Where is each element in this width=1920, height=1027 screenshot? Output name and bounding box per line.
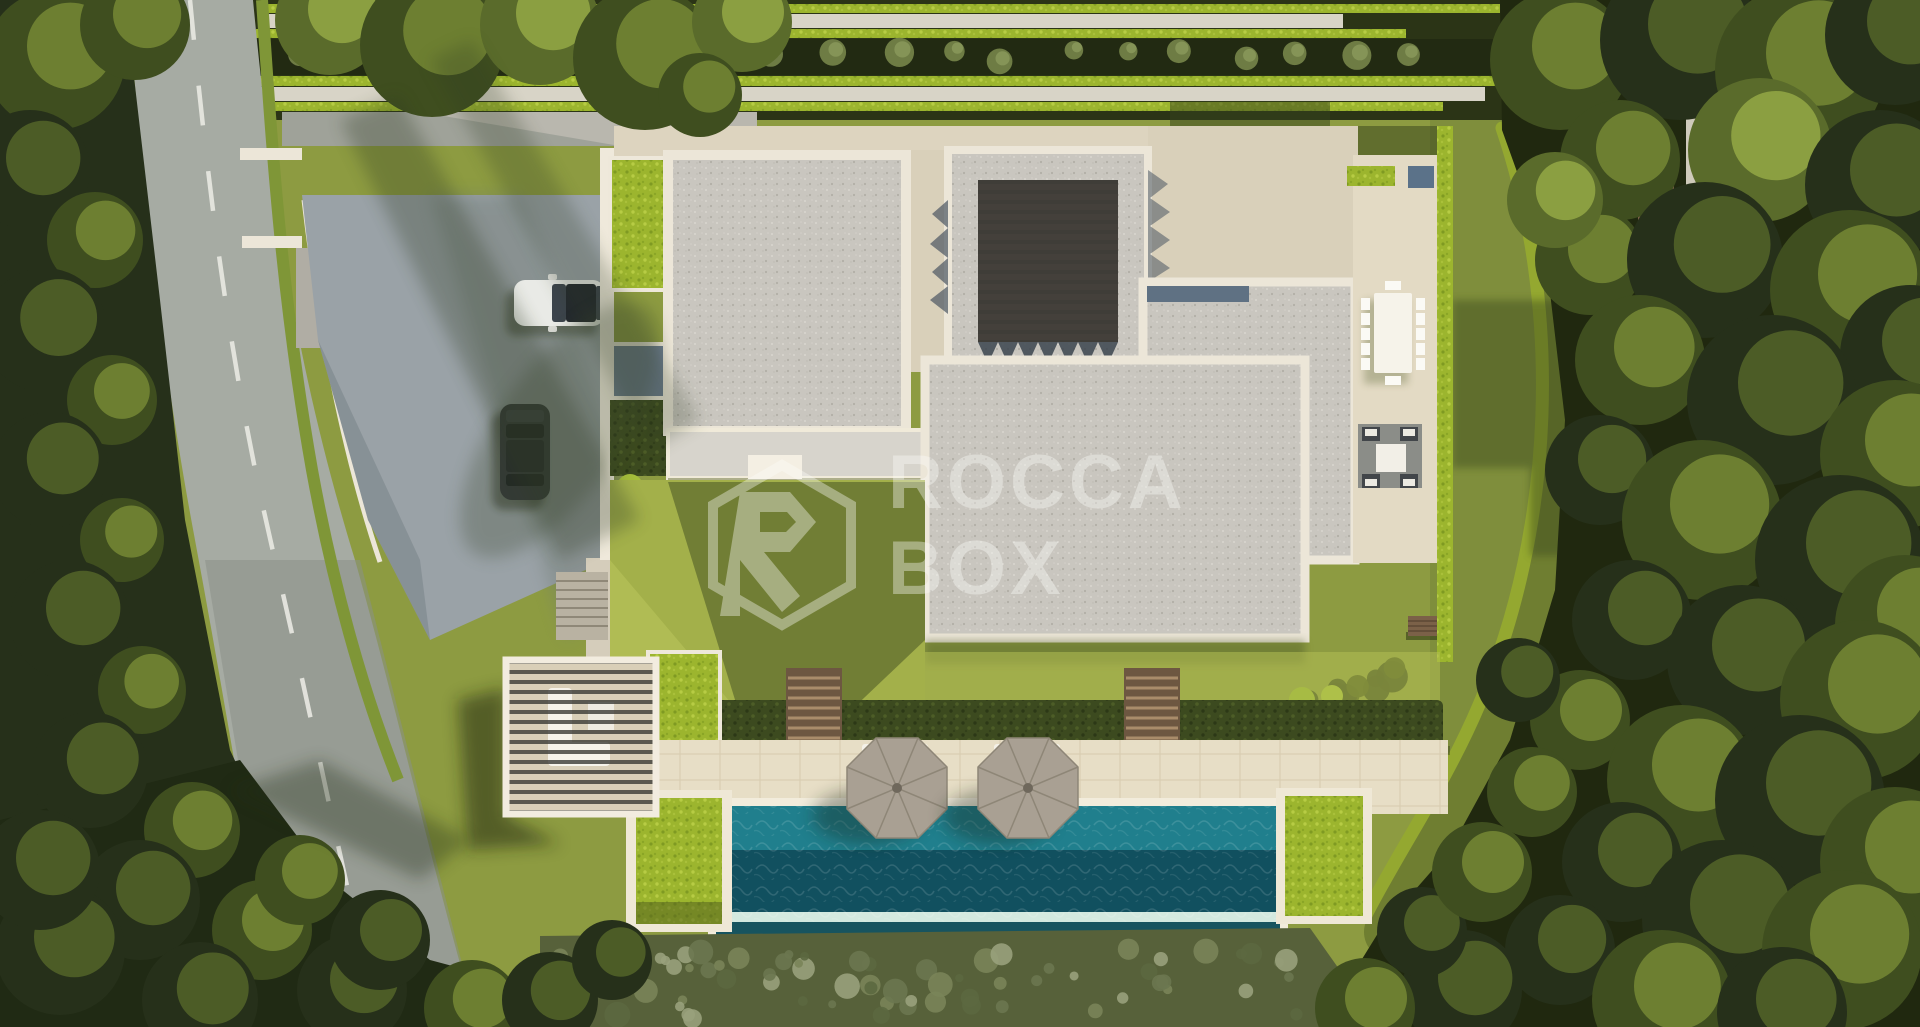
tree-canopy-highlight <box>173 791 233 851</box>
tree-canopy-highlight <box>1670 454 1769 553</box>
scrub-shrub <box>994 977 1007 990</box>
coffee-table <box>1376 444 1406 472</box>
chair-cushion <box>1403 429 1415 436</box>
tree-canopy-highlight <box>105 506 157 558</box>
east-court <box>1148 126 1358 284</box>
olive-tree-highlight <box>1352 44 1368 60</box>
gate-wall <box>240 148 302 160</box>
olive-tree-highlight <box>952 43 963 54</box>
stair-treads <box>788 678 840 738</box>
tree-canopy-highlight <box>1536 161 1596 221</box>
tree-canopy-highlight <box>360 899 422 961</box>
scrub-shrub <box>763 968 776 981</box>
chair-cushion <box>1365 429 1377 436</box>
scrub-shrub <box>784 950 793 959</box>
hedge-box-pool-right <box>1276 788 1372 924</box>
scrub-shrub <box>925 991 946 1012</box>
olive-tree-highlight <box>894 41 910 57</box>
scrub-shrub <box>849 951 870 972</box>
tree-canopy-highlight <box>282 843 338 899</box>
tree-canopy-highlight <box>6 121 80 195</box>
scrub-shrub <box>864 981 877 994</box>
scrub-shrub <box>1241 943 1263 965</box>
chair-cushion <box>1365 479 1377 486</box>
olive-tree-highlight <box>1405 45 1418 58</box>
tree-canopy-highlight <box>177 952 249 1024</box>
scrub-shrub <box>1290 1008 1302 1020</box>
scrub-shrub <box>688 940 713 965</box>
scrub-shrub <box>905 995 917 1007</box>
stair-flight <box>556 572 608 640</box>
scrub-shrub <box>873 1007 890 1024</box>
scrub-shrub <box>990 943 1012 965</box>
tree-canopy-highlight <box>1560 679 1622 741</box>
tree-canopy-highlight <box>1501 646 1553 698</box>
tree-canopy-highlight <box>16 821 90 895</box>
terrace-hedge-strip <box>1437 126 1453 662</box>
scrub-shrub <box>1152 975 1168 991</box>
tree-canopy-highlight <box>1614 307 1695 388</box>
chair-cushion <box>1403 479 1415 486</box>
tree-canopy-highlight <box>1345 967 1407 1027</box>
scrub-shrub <box>666 959 682 975</box>
tree-canopy-highlight <box>1596 111 1670 185</box>
scrub-shrub <box>717 969 737 989</box>
parasol-pole <box>1023 783 1033 793</box>
tree-canopy-highlight <box>1608 571 1682 645</box>
scrub-shrub <box>798 996 808 1006</box>
tree-canopy-highlight <box>27 422 99 494</box>
tree-canopy-highlight <box>20 279 97 356</box>
roof-slats <box>506 660 656 814</box>
olive-tree-highlight <box>828 42 843 57</box>
tree-canopy-highlight <box>596 927 646 977</box>
scrub-shrub <box>1044 963 1055 974</box>
lawn-sunlit-strip <box>925 652 1440 708</box>
tree-canopy-highlight <box>1634 943 1721 1027</box>
terrace-planter <box>1347 166 1395 186</box>
stairs-to-garden <box>556 572 608 640</box>
scrub-shrub <box>955 974 963 982</box>
olive-tree-highlight <box>1243 49 1256 62</box>
scrub-shrub <box>1275 949 1298 972</box>
tree-canopy-highlight <box>46 571 120 645</box>
parasol-pole <box>892 783 902 793</box>
scrub-shrub <box>1239 984 1254 999</box>
tree-canopy-highlight <box>67 722 139 794</box>
tree-canopy-highlight <box>1514 755 1570 811</box>
scrub-shrub <box>883 979 908 1004</box>
tree-canopy-highlight <box>1674 196 1771 293</box>
scrub-shrub <box>1088 1003 1103 1018</box>
scrub-shrub <box>961 989 979 1007</box>
scrub-shrub <box>794 959 803 968</box>
hedge-shade <box>636 902 722 924</box>
terrace-bench <box>1408 166 1434 188</box>
scrub-shrub <box>1284 972 1294 982</box>
pergola-slats <box>978 180 1118 342</box>
scrub-shrub <box>675 1002 685 1012</box>
scrub-shrub <box>828 1000 836 1008</box>
scrub-shrub <box>604 1002 630 1027</box>
tree-canopy-highlight <box>76 201 136 261</box>
hedge-fill <box>1285 796 1363 916</box>
gate-wall <box>242 236 302 248</box>
scrub-shrub <box>685 964 694 973</box>
scrub-shrub <box>1193 939 1218 964</box>
roof-block-a <box>668 155 906 431</box>
scrub-shrub <box>1117 992 1128 1003</box>
tree-canopy-highlight <box>1462 831 1524 893</box>
side-mirror <box>548 326 557 332</box>
aerial-villa-render: ROCCA BOX <box>0 0 1920 1027</box>
watermark-text-line2: BOX <box>888 526 1065 611</box>
olive-tree-highlight <box>1291 44 1304 57</box>
scrub-shrub <box>1031 975 1042 986</box>
scrub-shrub <box>800 952 809 961</box>
tree-canopy-highlight <box>1738 330 1843 435</box>
olive-tree-highlight <box>996 51 1010 65</box>
tree-canopy-highlight <box>94 363 150 419</box>
scrub-shrub <box>681 1008 695 1022</box>
tree-canopy-highlight <box>124 654 179 709</box>
hedge-stairs <box>1124 668 1180 752</box>
roof-glass-strip <box>1147 286 1249 302</box>
stair-treads <box>1126 678 1178 738</box>
scrub-hillside <box>540 928 1380 1027</box>
tree-canopy-highlight <box>116 851 190 925</box>
watermark-text-line1: ROCCA <box>888 440 1187 525</box>
scrub-shrub <box>728 947 750 969</box>
hedge-stairs <box>786 668 842 752</box>
olive-tree-highlight <box>1175 41 1188 54</box>
scrub-shrub <box>996 1000 1009 1013</box>
scrub-shrub <box>1154 952 1168 966</box>
tree-canopy-highlight <box>1538 905 1606 973</box>
dining-table <box>1374 293 1412 373</box>
olive-tree-highlight <box>1126 43 1136 53</box>
tree-canopy-highlight <box>1731 91 1820 180</box>
scrub-shrub <box>1070 971 1079 980</box>
scrub-shrub <box>700 962 716 978</box>
lounge-set <box>1358 424 1422 488</box>
tree-canopy-highlight <box>683 61 735 113</box>
scrub-shrub <box>834 973 860 999</box>
scrub-shrub <box>1118 939 1139 960</box>
olive-tree-highlight <box>1072 42 1082 52</box>
scrub-shrub <box>714 960 725 971</box>
scene-canvas: ROCCA BOX <box>0 0 1920 1027</box>
